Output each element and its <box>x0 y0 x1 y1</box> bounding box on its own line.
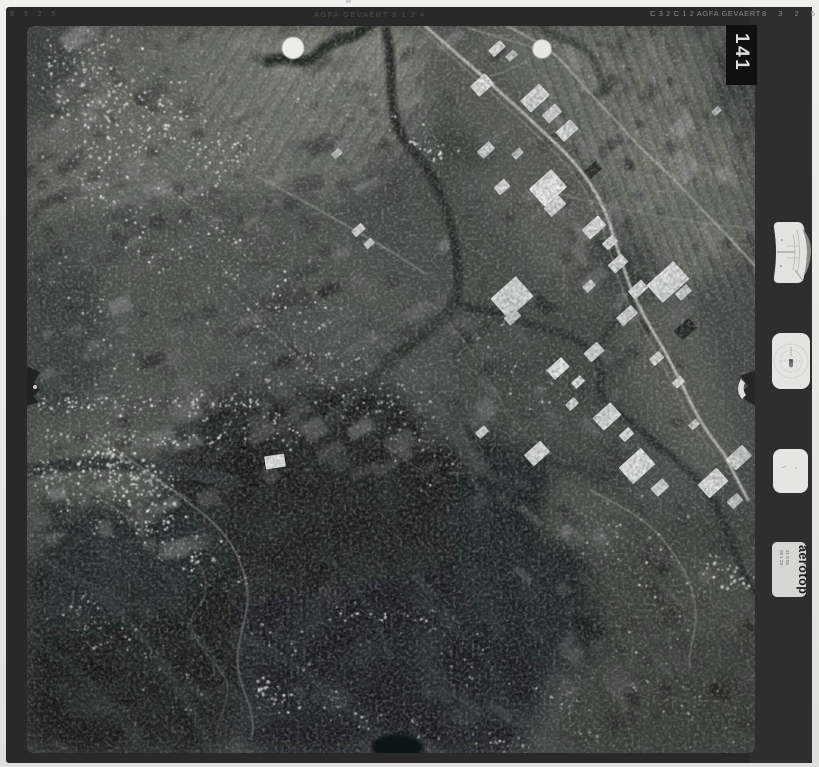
svg-text:· · · · AGFA GEVAERT 8 1 2 4: · · · · AGFA GEVAERT 8 1 2 4 <box>284 10 426 19</box>
svg-text:8 3 2 5: 8 3 2 5 <box>10 11 59 18</box>
svg-text:08 1 29: 08 1 29 <box>779 550 784 566</box>
svg-text:C 3 2 C 1 2 AGFA GEVAERT: C 3 2 C 1 2 AGFA GEVAERT <box>650 9 761 18</box>
svg-text:aerotop: aerotop <box>796 545 810 594</box>
svg-text:141: 141 <box>731 33 752 72</box>
svg-text:31 8 55: 31 8 55 <box>785 550 790 566</box>
svg-text:8 3 2 5: 8 3 2 5 <box>762 9 819 18</box>
